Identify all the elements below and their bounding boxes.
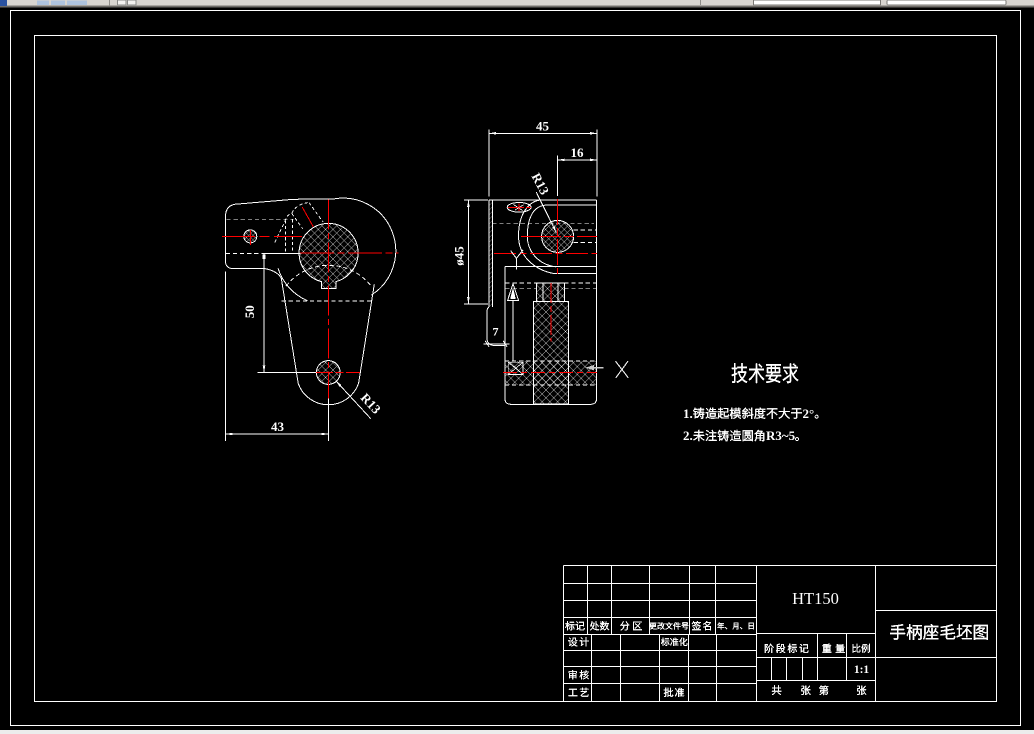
svg-text:2.: 2. [683, 428, 693, 443]
svg-text:50: 50 [242, 305, 257, 318]
svg-text:45: 45 [536, 119, 550, 134]
svg-text:ø45: ø45 [452, 246, 467, 266]
svg-text:1.: 1. [683, 406, 693, 421]
svg-text:HT150: HT150 [792, 589, 839, 608]
svg-text:1:1: 1:1 [854, 664, 870, 676]
svg-text:16: 16 [571, 145, 585, 160]
svg-text:7: 7 [493, 325, 499, 339]
svg-text:R3~5: R3~5 [766, 428, 796, 443]
svg-text:2°: 2° [803, 406, 815, 421]
svg-text:43: 43 [271, 419, 285, 434]
